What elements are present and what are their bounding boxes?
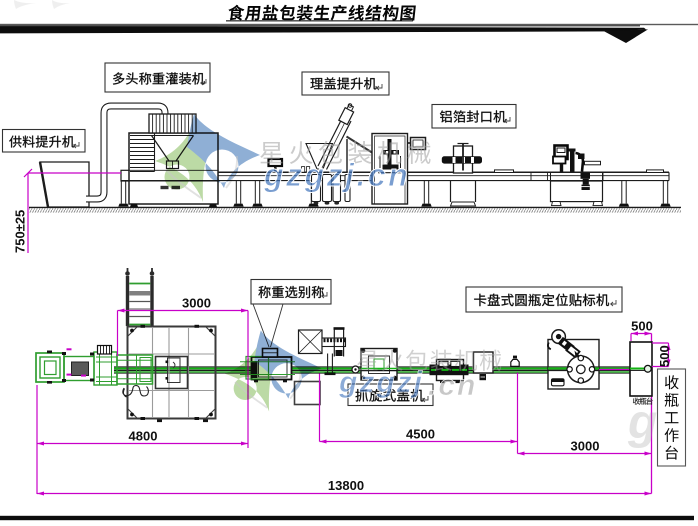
svg-text:4800: 4800 — [129, 429, 158, 444]
svg-text:.cn: .cn — [428, 369, 477, 402]
svg-text:3000: 3000 — [571, 439, 600, 454]
svg-text:gzgzj: gzgzj — [338, 366, 424, 399]
svg-text:g: g — [627, 396, 657, 449]
svg-text:3000: 3000 — [182, 296, 211, 311]
svg-text:500: 500 — [657, 345, 672, 367]
svg-text:4500: 4500 — [406, 427, 435, 442]
svg-text:750±25: 750±25 — [13, 210, 28, 253]
svg-text:gzgzj.cn: gzgzj.cn — [263, 157, 410, 193]
svg-text:500: 500 — [631, 319, 653, 334]
svg-text:13800: 13800 — [328, 478, 364, 493]
